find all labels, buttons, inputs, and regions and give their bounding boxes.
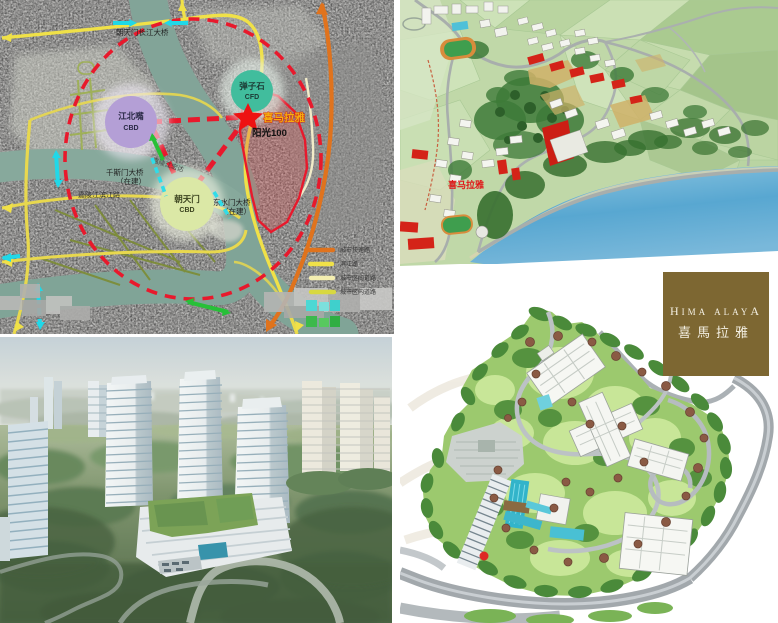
svg-text:喜马拉雅: 喜马拉雅	[263, 111, 305, 124]
svg-text:滨江路: 滨江路	[340, 260, 358, 268]
svg-text:CBD: CBD	[179, 207, 194, 214]
svg-text:朝天门长江大桥: 朝天门长江大桥	[116, 27, 169, 37]
svg-text:CFD: CFD	[245, 94, 259, 101]
svg-text:嘉陵江滨江路: 嘉陵江滨江路	[78, 190, 120, 199]
svg-text:城市快速路: 城市快速路	[340, 246, 370, 254]
svg-text:阳光100: 阳光100	[252, 127, 287, 139]
svg-text:城市区间道路: 城市区间道路	[340, 274, 376, 282]
svg-text:朝天门: 朝天门	[174, 194, 200, 204]
svg-text:城市区内道路: 城市区内道路	[340, 288, 376, 296]
svg-text:喜马拉雅: 喜马拉雅	[448, 179, 484, 190]
svg-text:CBD: CBD	[123, 125, 138, 132]
svg-text:弹子石: 弹子石	[239, 81, 265, 91]
svg-text:千斯门大桥: 千斯门大桥	[106, 167, 144, 177]
svg-text:江北嘴: 江北嘴	[118, 111, 144, 121]
svg-text:（在建）: （在建）	[116, 176, 146, 186]
